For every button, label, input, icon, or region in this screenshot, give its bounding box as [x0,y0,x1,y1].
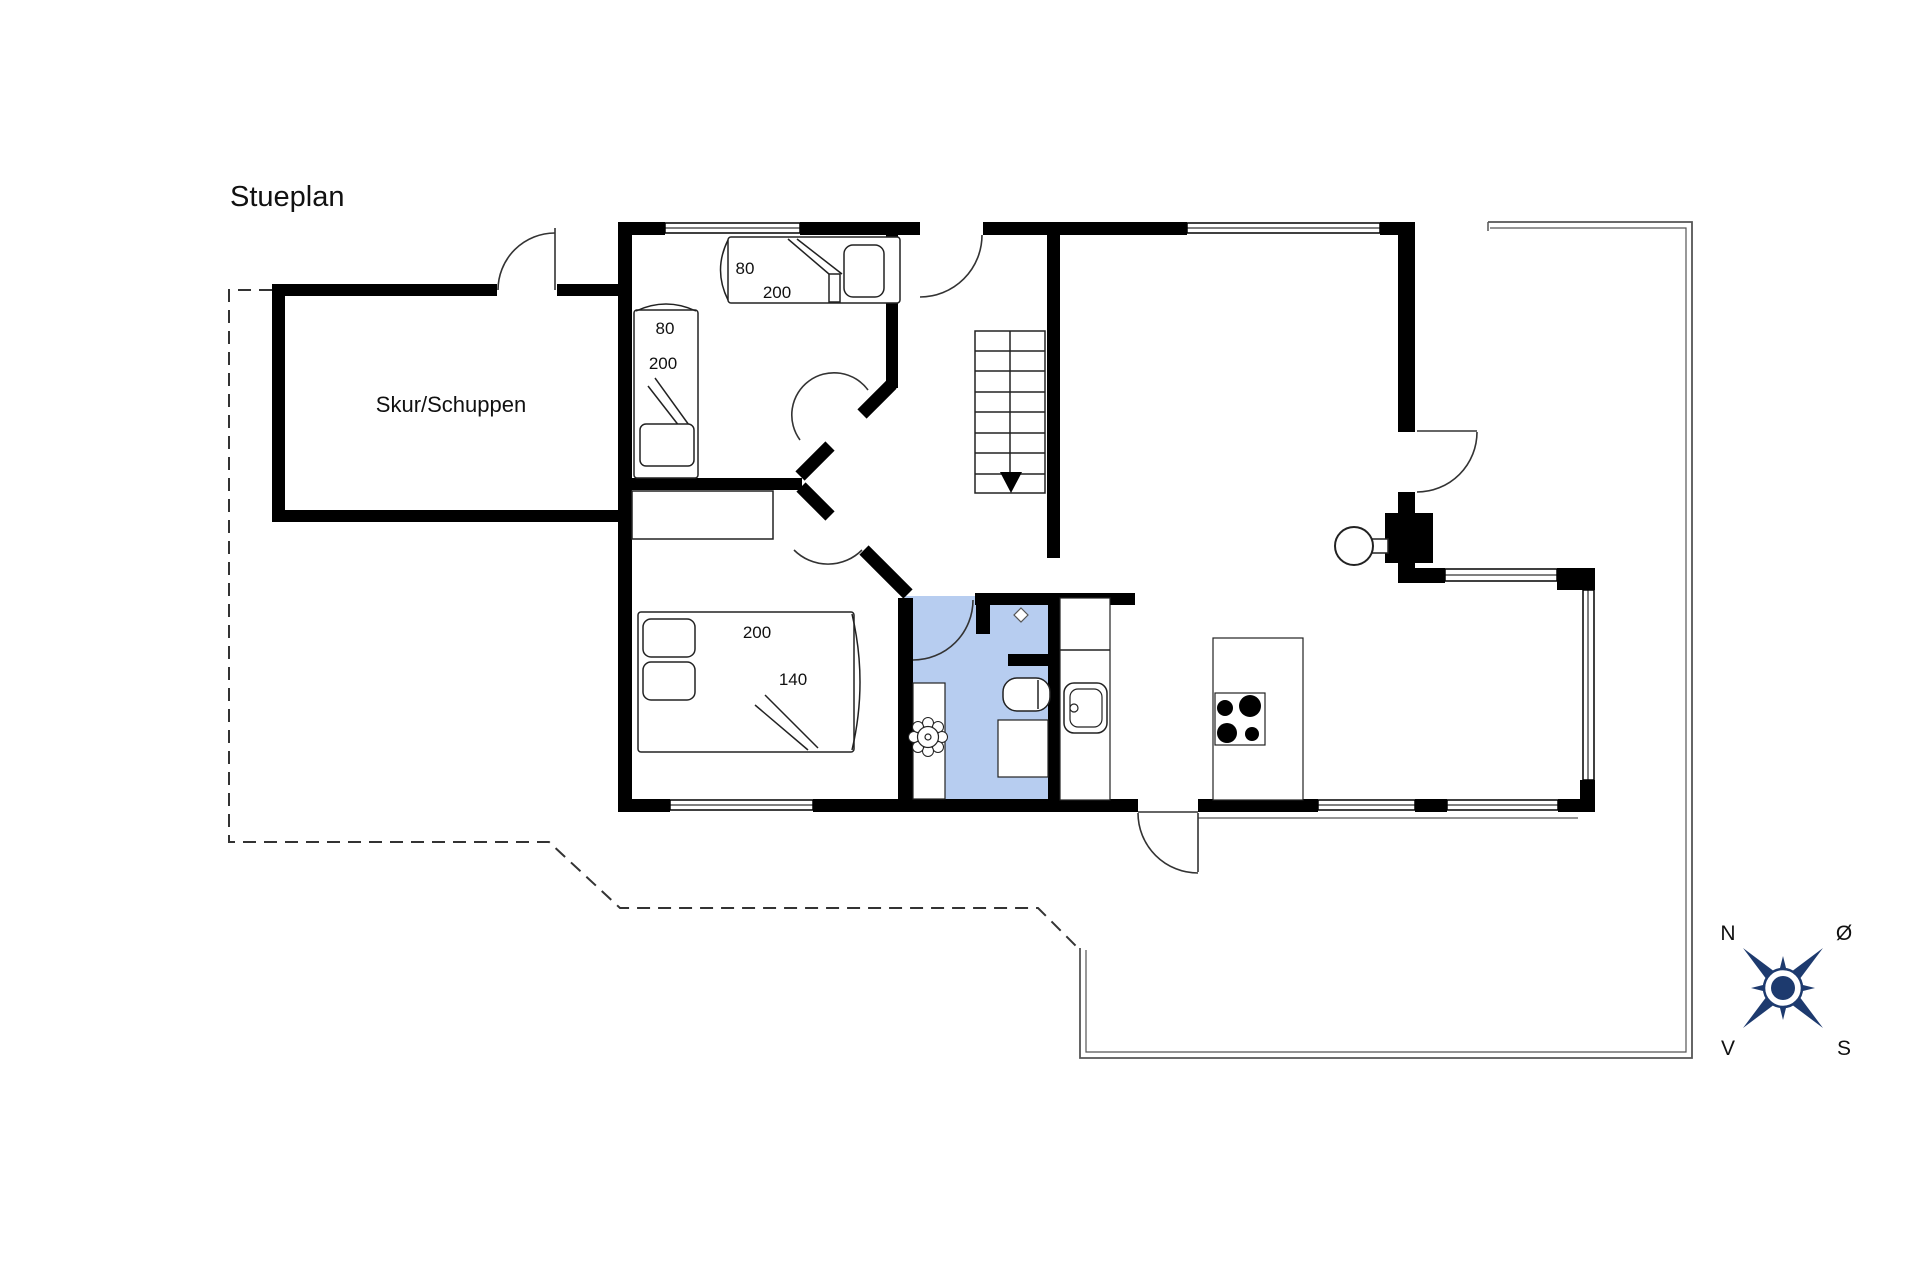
kitchen-sink [1064,683,1107,733]
compass-e-label: Ø [1836,922,1852,945]
window-bedroom2-south [670,800,813,810]
terrace-outline [1080,222,1692,1058]
compass-rose [1743,948,1823,1028]
south-terrace-door [1138,812,1198,873]
floorplan-drawing: Stueplan Skur/Schuppen 80 200 80 200 200… [0,0,1920,1280]
double-bed-width-label: 140 [779,670,807,689]
bed-left-length-label: 200 [649,354,677,373]
bed-top-width-label: 80 [736,259,755,278]
kitchen-counter [1060,598,1110,800]
bedroom1-door-arc [792,373,868,440]
toilet [1003,678,1050,711]
shed-door [498,228,555,290]
window-dining-south-2 [1447,800,1558,810]
page-title: Stueplan [230,181,345,213]
wardrobe [632,491,773,539]
bedroom2-door-arc [794,550,862,564]
shed-label: Skur/Schuppen [376,392,526,417]
kitchen-island [1213,638,1303,800]
compass-n-label: N [1720,922,1735,945]
window-bay-north [1445,569,1557,581]
floorplan-page: Stueplan Skur/Schuppen 80 200 80 200 200… [0,0,1920,1280]
window-living-north [1187,223,1380,233]
compass-v-label: V [1721,1037,1735,1060]
wood-stove [1335,527,1388,565]
window-bedroom1-north [665,223,800,233]
staircase [975,331,1045,493]
window-bay-east [1583,590,1594,780]
shower-base [998,720,1048,777]
entry-door-arc [920,235,982,297]
compass-s-label: S [1837,1037,1851,1060]
east-terrace-door [1417,431,1477,492]
bed-left-width-label: 80 [656,319,675,338]
round-basin [909,718,948,757]
stove-top [1215,693,1265,745]
bed-top-length-label: 200 [763,283,791,302]
double-bed-length-label: 200 [743,623,771,642]
window-dining-south-1 [1318,800,1415,810]
fireplace-block [1385,513,1433,563]
